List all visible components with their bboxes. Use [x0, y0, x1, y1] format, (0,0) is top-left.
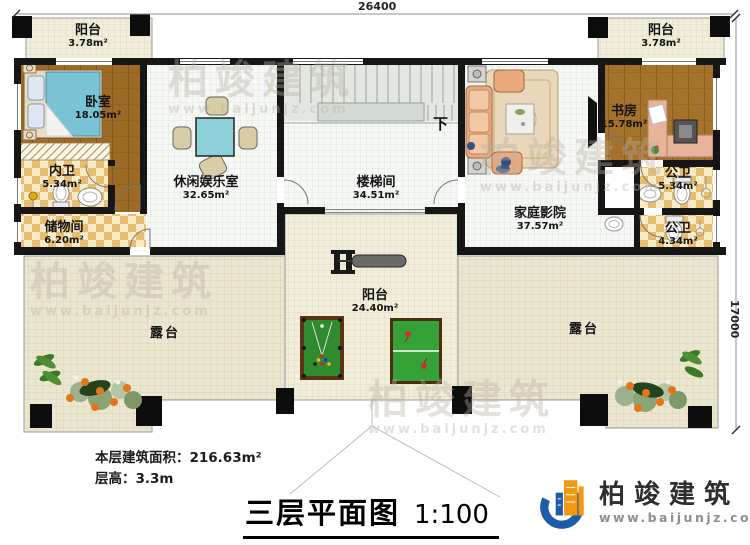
stairs-down-label: 下 [433, 113, 448, 134]
room-label-balcony-center: 阳台 24.40m² [352, 289, 398, 314]
plan-title: 三层平面图 [245, 496, 400, 530]
room-label-stairwell: 楼梯间 34.51m² [353, 176, 399, 201]
room-label-bath-upper: 公卫 5.34m² [658, 167, 697, 192]
plan-notes: 本层建筑面积：216.63m² 层高：3.3m [95, 448, 262, 490]
floor-height-note: 层高：3.3m [95, 469, 262, 490]
room-label-home-theater: 家庭影院 37.57m² [514, 207, 566, 232]
logo-website: www.baijunjz.com [599, 510, 750, 525]
room-label-balcony-top-right: 阳台 3.78m² [641, 24, 680, 49]
sheet-title: 三层平面图1:100 [243, 490, 499, 539]
stairs [284, 65, 458, 123]
logo-mark-icon [537, 474, 593, 532]
room-label-ensuite: 内卫 5.34m² [42, 165, 81, 190]
dimension-right: 17000 [728, 300, 741, 338]
floor-area-note: 本层建筑面积：216.63m² [95, 448, 262, 469]
logo-texts: 柏竣建筑 www.baijunjz.com [599, 481, 750, 525]
room-label-study: 书房 15.78m² [601, 105, 647, 130]
room-label-bath-lower: 公卫 4.34m² [658, 222, 697, 247]
room-label-balcony-top-left: 阳台 3.78m² [68, 24, 107, 49]
dimension-top: 26400 [358, 0, 396, 13]
plan-scale: 1:100 [414, 500, 489, 530]
room-label-terrace-right: 露台 [569, 318, 599, 337]
room-label-leisure: 休闲娱乐室 32.65m² [173, 176, 238, 201]
logo-company-name: 柏竣建筑 [599, 481, 750, 510]
room-label-terrace-left: 露台 [150, 322, 180, 341]
pool-table [300, 316, 344, 380]
room-label-storage: 储物间 6.20m² [44, 221, 83, 246]
room-label-bedroom: 卧室 18.05m² [75, 96, 121, 121]
sofa-set [466, 66, 558, 174]
floor-plan-sheet: 柏竣建筑 www.baijunjz.com 柏竣建筑 www.baijunjz.… [0, 0, 750, 545]
wardrobe [20, 143, 110, 160]
tv [588, 96, 597, 148]
ping-pong-table [390, 318, 442, 384]
company-logo: 柏竣建筑 www.baijunjz.com [537, 474, 750, 532]
